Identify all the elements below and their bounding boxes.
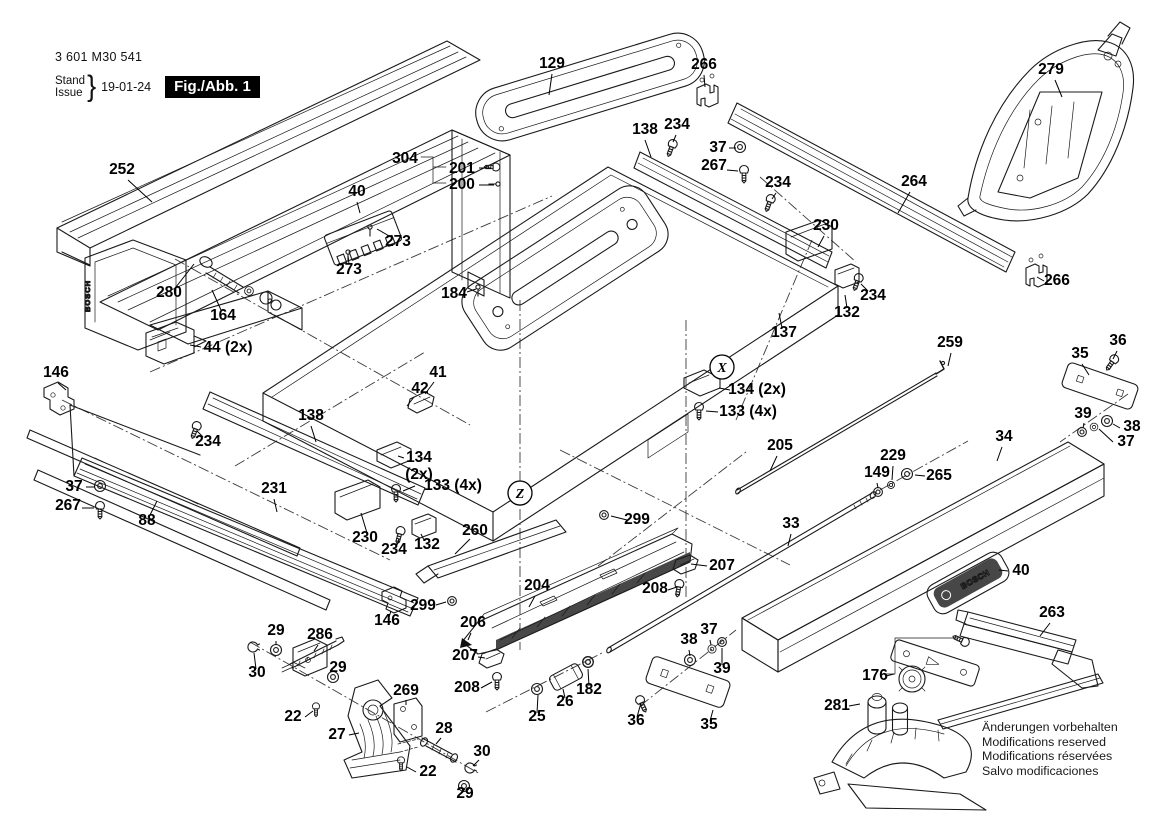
stand-label: Stand bbox=[55, 75, 85, 87]
leader-line bbox=[997, 447, 1002, 461]
part-label-129: 129 bbox=[539, 55, 565, 72]
part-label-29: 29 bbox=[329, 659, 347, 676]
part-label-137: 137 bbox=[771, 324, 797, 341]
part-label-39: 39 bbox=[1074, 405, 1092, 422]
part-label-234: 234 bbox=[195, 433, 221, 450]
leader-line bbox=[1113, 424, 1120, 428]
leader-line bbox=[1083, 423, 1084, 428]
part-label-39: 39 bbox=[713, 660, 731, 677]
leader-line bbox=[1037, 277, 1044, 281]
leader-line bbox=[898, 192, 910, 213]
part-207-clip-left bbox=[479, 649, 504, 668]
part-label-230: 230 bbox=[352, 529, 378, 546]
hardware-small-parts bbox=[95, 138, 1121, 791]
part-label-22: 22 bbox=[284, 708, 301, 725]
part-146-clamp-upper bbox=[44, 382, 74, 415]
part-label-42: 42 bbox=[411, 380, 428, 397]
leader-line bbox=[706, 411, 718, 412]
exploded-diagram: BOSCH bbox=[0, 0, 1166, 824]
part-40-badge: BOSCH bbox=[924, 549, 1013, 618]
part-label-36: 36 bbox=[627, 712, 645, 729]
part-label-30: 30 bbox=[473, 743, 490, 760]
part-label-176: 176 bbox=[862, 667, 888, 684]
part-35-plate-right bbox=[1061, 362, 1139, 411]
part-label-267: 267 bbox=[701, 157, 727, 174]
part-label-164: 164 bbox=[210, 307, 236, 324]
part-label-299: 299 bbox=[410, 597, 436, 614]
leader-line bbox=[436, 738, 441, 744]
part-label-134: 134 bbox=[406, 449, 432, 466]
leader-line bbox=[311, 426, 316, 442]
leader-line bbox=[1082, 364, 1089, 375]
part-label-206: 206 bbox=[460, 614, 486, 631]
part-259-wire bbox=[936, 361, 945, 374]
part-label-146: 146 bbox=[374, 612, 400, 629]
part-label-25: 25 bbox=[528, 708, 546, 725]
part-label-286: 286 bbox=[307, 626, 333, 643]
leader-line bbox=[1055, 80, 1062, 97]
leader-line bbox=[481, 682, 492, 688]
part-label-265: 265 bbox=[926, 467, 952, 484]
part-label-40: 40 bbox=[1012, 562, 1029, 579]
part-label-205: 205 bbox=[767, 437, 793, 454]
part-label-35: 35 bbox=[1071, 345, 1089, 362]
part-138-rail-upper bbox=[634, 152, 832, 268]
part-label-37: 37 bbox=[65, 478, 82, 495]
type-number: 3 601 M30 541 bbox=[55, 50, 260, 64]
part-label-231: 231 bbox=[261, 480, 287, 497]
brace-glyph: } bbox=[87, 69, 96, 103]
part-label-234: 234 bbox=[381, 541, 407, 558]
part-label-281: 281 bbox=[824, 697, 850, 714]
part-label-234: 234 bbox=[664, 116, 690, 133]
part-label-234: 234 bbox=[765, 174, 791, 191]
leader-line bbox=[788, 534, 791, 546]
part-label-299: 299 bbox=[624, 511, 650, 528]
title-block: 3 601 M30 541 Stand Issue } 19-01-24 Fig… bbox=[55, 50, 260, 102]
leader-line bbox=[727, 170, 738, 171]
issue-date: 19-01-24 bbox=[101, 80, 151, 94]
part-label-40: 40 bbox=[348, 183, 365, 200]
part-label-184: 184 bbox=[441, 285, 467, 302]
part-label-207: 207 bbox=[452, 647, 478, 664]
leader-line bbox=[892, 466, 893, 480]
leader-line bbox=[478, 657, 485, 658]
part-label-37: 37 bbox=[709, 139, 726, 156]
parts-diagram-page: BOSCH bbox=[0, 0, 1166, 824]
part-label-266: 266 bbox=[691, 56, 717, 73]
part-label-267: 267 bbox=[55, 497, 81, 514]
section-ref-letter-X: X bbox=[716, 361, 727, 376]
part-label-266: 266 bbox=[1044, 272, 1070, 289]
part-label-260: 260 bbox=[462, 522, 488, 539]
part-label-38: 38 bbox=[680, 631, 698, 648]
part-34-fence bbox=[742, 442, 1104, 672]
part-label-30: 30 bbox=[248, 664, 265, 681]
part-label-41: 41 bbox=[429, 364, 447, 381]
leader-line bbox=[818, 236, 824, 247]
part-label-252: 252 bbox=[109, 161, 135, 178]
leader-line bbox=[948, 353, 951, 366]
part-label-273: 273 bbox=[336, 261, 362, 278]
leader-line bbox=[436, 602, 446, 605]
part-label-35: 35 bbox=[700, 716, 718, 733]
note-fr: Modifications réservées bbox=[982, 749, 1118, 764]
part-label-229: 229 bbox=[880, 447, 906, 464]
part-label-263: 263 bbox=[1039, 604, 1065, 621]
part-label-149: 149 bbox=[864, 464, 890, 481]
section-ref-letter-Z: Z bbox=[515, 487, 525, 502]
part-label-259: 259 bbox=[937, 334, 963, 351]
part-label-230: 230 bbox=[813, 217, 839, 234]
part-132-bracket-left bbox=[412, 514, 436, 538]
part-label-33: 33 bbox=[782, 515, 800, 532]
leader-line bbox=[407, 767, 416, 772]
part-279-blade-guard bbox=[958, 22, 1134, 221]
part-label-29: 29 bbox=[456, 785, 474, 802]
part-label-27: 27 bbox=[328, 726, 345, 743]
part-label-279: 279 bbox=[1038, 61, 1064, 78]
issue-label: Issue bbox=[55, 87, 85, 99]
part-label-36: 36 bbox=[1109, 332, 1127, 349]
part-label-280: 280 bbox=[156, 284, 182, 301]
leader-line bbox=[668, 587, 677, 590]
leader-line bbox=[915, 475, 925, 476]
part-label-34: 34 bbox=[995, 428, 1013, 445]
part-132-bracket-right bbox=[835, 264, 859, 288]
part-label-204: 204 bbox=[524, 577, 550, 594]
part-label-208: 208 bbox=[642, 580, 668, 597]
leader-line bbox=[1099, 429, 1113, 442]
part-label-37: 37 bbox=[1117, 433, 1134, 450]
leader-line bbox=[305, 711, 313, 717]
leader-line bbox=[398, 456, 404, 458]
figure-label: Fig./Abb. 1 bbox=[165, 76, 260, 98]
part-label-234: 234 bbox=[860, 287, 886, 304]
leader-line bbox=[274, 499, 277, 512]
leader-line bbox=[1040, 623, 1050, 636]
part-label-201: 201 bbox=[449, 160, 475, 177]
part-label-146: 146 bbox=[43, 364, 69, 381]
part-label-1334x: 133 (4x) bbox=[424, 477, 482, 494]
part-230-plate-left bbox=[335, 480, 380, 520]
part-label-138: 138 bbox=[632, 121, 658, 138]
part-label-1334x: 133 (4x) bbox=[719, 403, 777, 420]
part-label-132: 132 bbox=[834, 304, 860, 321]
part-label-208: 208 bbox=[454, 679, 480, 696]
part-label-37: 37 bbox=[700, 621, 717, 638]
part-label-88: 88 bbox=[138, 512, 156, 529]
leader-line bbox=[645, 140, 651, 157]
part-label-28: 28 bbox=[435, 720, 453, 737]
part-231-rail bbox=[70, 405, 418, 616]
leader-line bbox=[849, 704, 860, 706]
part-label-138: 138 bbox=[298, 407, 324, 424]
part-label-132: 132 bbox=[414, 536, 440, 553]
part-label-182: 182 bbox=[576, 681, 602, 698]
modification-notes: Änderungen vorbehalten Modifications res… bbox=[982, 720, 1118, 778]
leader-line bbox=[691, 564, 707, 566]
part-266-clamp-left bbox=[697, 74, 718, 107]
part-label-273: 273 bbox=[385, 233, 411, 250]
leader-line bbox=[349, 733, 359, 735]
leader-line bbox=[128, 180, 152, 202]
part-label-269: 269 bbox=[393, 682, 419, 699]
part-label-200: 200 bbox=[449, 176, 475, 193]
note-es: Salvo modificaciones bbox=[982, 764, 1118, 779]
bosch-logo-vertical: BOSCH bbox=[83, 280, 92, 312]
part-label-29: 29 bbox=[267, 622, 285, 639]
part-label-442x: 44 (2x) bbox=[203, 339, 252, 356]
part-label-304: 304 bbox=[392, 150, 418, 167]
part-label-22: 22 bbox=[419, 763, 436, 780]
part-label-264: 264 bbox=[901, 173, 927, 190]
note-de: Änderungen vorbehalten bbox=[982, 720, 1118, 735]
part-304-bracket bbox=[421, 130, 510, 298]
part-164-bolt bbox=[198, 255, 281, 310]
part-label-1342x: 134 (2x) bbox=[728, 381, 786, 398]
label-layer: 25228016444 (2x)146129304201200402732731… bbox=[43, 55, 1141, 802]
part-label-26: 26 bbox=[556, 693, 574, 710]
leader-line bbox=[710, 640, 711, 645]
part-label-207: 207 bbox=[709, 557, 735, 574]
note-en: Modifications reserved bbox=[982, 735, 1118, 750]
